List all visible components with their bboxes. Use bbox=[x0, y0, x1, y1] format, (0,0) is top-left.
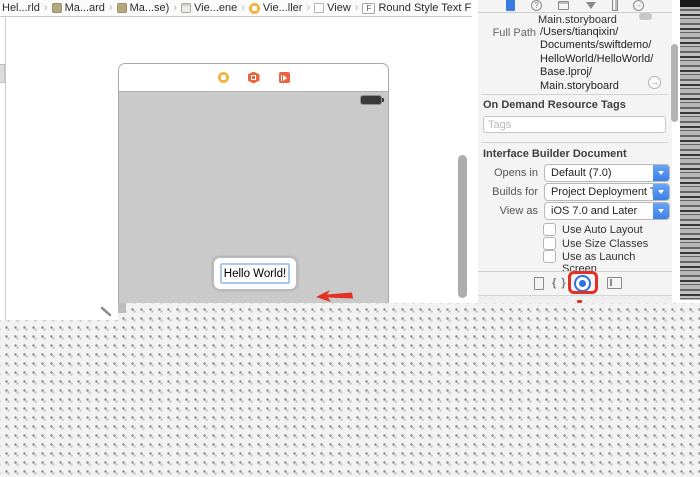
breadcrumb-item-project[interactable]: Hel...rld bbox=[2, 2, 40, 14]
exit-segue-icon[interactable] bbox=[279, 72, 290, 83]
breadcrumb: Hel...rld › Ma...ard › Ma...se) › Vie...… bbox=[0, 0, 472, 17]
view-controller-icon[interactable] bbox=[218, 72, 229, 83]
chevron-down-icon bbox=[653, 202, 669, 220]
breadcrumb-item-text-field[interactable]: F Round Style Text Field bbox=[362, 2, 472, 14]
resize-handle-icon[interactable] bbox=[99, 304, 114, 319]
chevron-down-icon bbox=[653, 183, 669, 201]
breadcrumb-item-view[interactable]: View bbox=[314, 2, 351, 14]
file-inspector-tab-icon[interactable] bbox=[504, 0, 517, 12]
view-controller-icon bbox=[249, 3, 260, 14]
breadcrumb-label: View bbox=[327, 2, 351, 14]
panel-footer-strip bbox=[478, 295, 672, 303]
view-as-popup[interactable]: iOS 7.0 and Later bbox=[544, 202, 670, 220]
full-path-line: Documents/swiftdemo/ bbox=[540, 39, 653, 52]
file-template-library-icon[interactable] bbox=[534, 277, 544, 290]
utilities-panel: ? → Main.storyboard Full Path /Users/tia… bbox=[478, 0, 672, 295]
interface-builder-document-header: Interface Builder Document bbox=[483, 148, 627, 160]
red-highlight-annotation bbox=[568, 271, 598, 294]
scene-icon bbox=[181, 3, 191, 13]
media-library-icon[interactable] bbox=[607, 277, 622, 289]
on-demand-resource-tags-header: On Demand Resource Tags bbox=[483, 99, 626, 111]
code-snippet-library-icon[interactable]: { } bbox=[552, 277, 567, 289]
storyboard-file-icon bbox=[52, 3, 62, 13]
builds-for-label: Builds for bbox=[478, 186, 538, 198]
location-value: Main.storyboard bbox=[538, 14, 617, 26]
connections-inspector-tab-icon[interactable]: → bbox=[632, 0, 645, 12]
view-icon bbox=[314, 3, 324, 13]
breadcrumb-label: Ma...ard bbox=[65, 2, 105, 14]
canvas-vertical-scrollbar[interactable] bbox=[458, 155, 467, 298]
use-size-classes-checkbox[interactable] bbox=[543, 237, 556, 250]
full-path-line: /Users/tianqixin/ bbox=[540, 26, 653, 39]
breadcrumb-label: Vie...ene bbox=[194, 2, 237, 14]
opens-in-popup[interactable]: Default (7.0) bbox=[544, 164, 670, 182]
builds-for-popup[interactable]: Project Deployment T... bbox=[544, 183, 670, 201]
breadcrumb-item-storyboard[interactable]: Ma...ard bbox=[52, 2, 105, 14]
hello-world-text-field[interactable]: Hello World! bbox=[220, 263, 290, 284]
text-field-selection[interactable]: Hello World! bbox=[213, 257, 297, 290]
quick-help-tab-icon[interactable]: ? bbox=[530, 0, 543, 12]
open-in-finder-arrow-icon[interactable]: → bbox=[648, 76, 661, 89]
first-responder-icon[interactable] bbox=[248, 72, 260, 84]
canvas-artifact bbox=[118, 303, 126, 313]
canvas-left-border bbox=[5, 17, 6, 320]
breadcrumb-separator: › bbox=[44, 2, 48, 14]
breadcrumb-label: Ma...se) bbox=[130, 2, 170, 14]
full-path-label: Full Path bbox=[478, 27, 536, 39]
section-divider bbox=[482, 94, 668, 95]
breadcrumb-label: Hel...rld bbox=[2, 2, 40, 14]
breadcrumb-separator: › bbox=[241, 2, 245, 14]
section-divider bbox=[482, 142, 668, 143]
full-path-line: Main.storyboard bbox=[540, 80, 653, 93]
tags-input[interactable]: Tags bbox=[483, 116, 666, 133]
full-path-value: /Users/tianqixin/ Documents/swiftdemo/ H… bbox=[540, 26, 653, 93]
chevron-down-icon bbox=[653, 164, 669, 182]
breadcrumb-label: Round Style Text Field bbox=[378, 2, 472, 14]
background-window-preview bbox=[680, 0, 700, 300]
xcode-window: Hel...rld › Ma...ard › Ma...se) › Vie...… bbox=[0, 0, 700, 477]
background-window-titlebar bbox=[680, 0, 700, 7]
status-bar-battery-icon bbox=[361, 96, 381, 104]
use-auto-layout-label[interactable]: Use Auto Layout bbox=[562, 224, 643, 236]
red-arrow-annotation bbox=[316, 289, 354, 303]
red-mark-artifact bbox=[577, 300, 582, 303]
use-size-classes-label[interactable]: Use Size Classes bbox=[562, 238, 648, 250]
full-path-line: HelloWorld/HelloWorld/ bbox=[540, 53, 653, 66]
identity-inspector-tab-icon[interactable] bbox=[557, 0, 570, 12]
breadcrumb-separator: › bbox=[109, 2, 113, 14]
breadcrumb-item-storyboard-base[interactable]: Ma...se) bbox=[117, 2, 170, 14]
scrollbar-fragment bbox=[639, 13, 652, 20]
breadcrumb-separator: › bbox=[355, 2, 359, 14]
view-controller-header bbox=[119, 64, 388, 92]
builds-for-value: Project Deployment T... bbox=[545, 186, 653, 198]
full-path-line: Base.lproj/ bbox=[540, 66, 653, 79]
opens-in-label: Opens in bbox=[478, 167, 538, 179]
opens-in-value: Default (7.0) bbox=[545, 167, 653, 179]
canvas-edge-tab[interactable] bbox=[0, 64, 5, 83]
breadcrumb-item-view-controller[interactable]: Vie...ller bbox=[249, 2, 303, 14]
view-as-label: View as bbox=[478, 205, 538, 217]
inspector-tab-bar: ? → bbox=[478, 0, 672, 13]
attributes-inspector-tab-icon[interactable] bbox=[584, 0, 597, 12]
storyboard-file-icon bbox=[117, 3, 127, 13]
breadcrumb-separator: › bbox=[306, 2, 310, 14]
desktop-dotted-background bbox=[0, 303, 700, 477]
view-controller-frame[interactable]: Hello World! bbox=[118, 63, 389, 303]
size-inspector-tab-icon[interactable] bbox=[608, 0, 621, 12]
use-as-launch-screen-checkbox[interactable] bbox=[543, 250, 556, 263]
text-field-icon: F bbox=[362, 3, 375, 14]
breadcrumb-item-scene[interactable]: Vie...ene bbox=[181, 2, 237, 14]
use-auto-layout-checkbox[interactable] bbox=[543, 223, 556, 236]
breadcrumb-label: Vie...ller bbox=[263, 2, 303, 14]
panel-vertical-scrollbar[interactable] bbox=[671, 44, 678, 122]
view-as-value: iOS 7.0 and Later bbox=[545, 205, 653, 217]
breadcrumb-separator: › bbox=[173, 2, 177, 14]
